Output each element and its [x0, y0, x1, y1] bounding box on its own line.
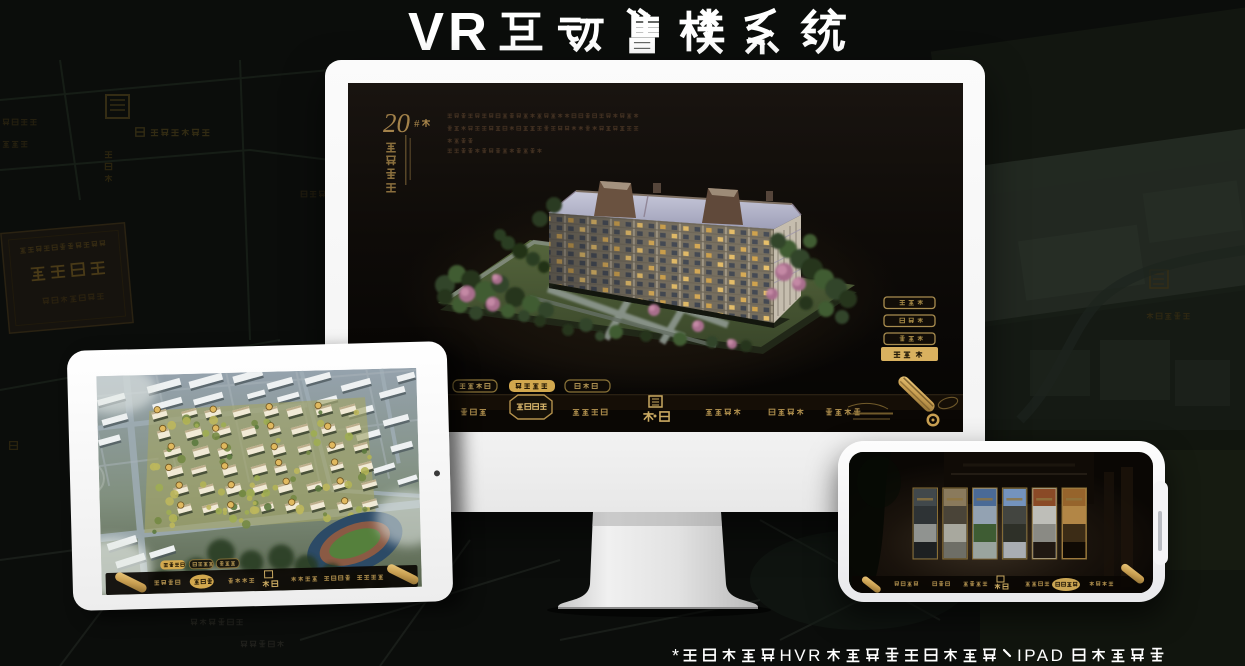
- svg-text:IPAD: IPAD: [1017, 646, 1065, 665]
- svg-text:HVR: HVR: [780, 646, 823, 665]
- svg-text:*: *: [672, 646, 679, 666]
